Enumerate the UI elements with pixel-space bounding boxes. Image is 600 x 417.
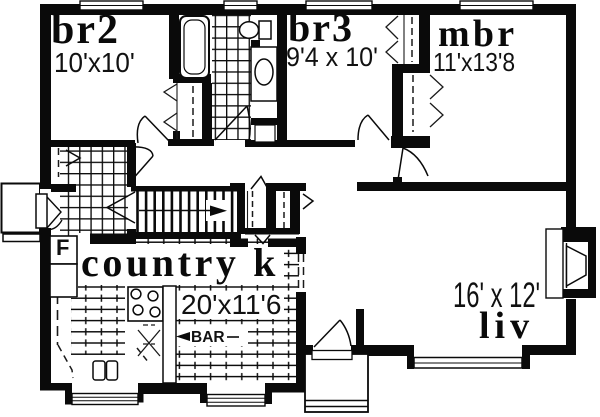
svg-text:liv: liv	[479, 305, 534, 347]
svg-text:10'x10': 10'x10'	[54, 47, 135, 78]
svg-text:F: F	[56, 235, 69, 260]
svg-text:br2: br2	[51, 7, 120, 53]
svg-text:11'x13'8: 11'x13'8	[433, 49, 515, 78]
svg-text:20'x11'6: 20'x11'6	[181, 289, 281, 320]
svg-text:9'4 x 10': 9'4 x 10'	[286, 41, 378, 72]
svg-text:country k: country k	[81, 240, 279, 285]
svg-text:BAR: BAR	[191, 329, 225, 346]
